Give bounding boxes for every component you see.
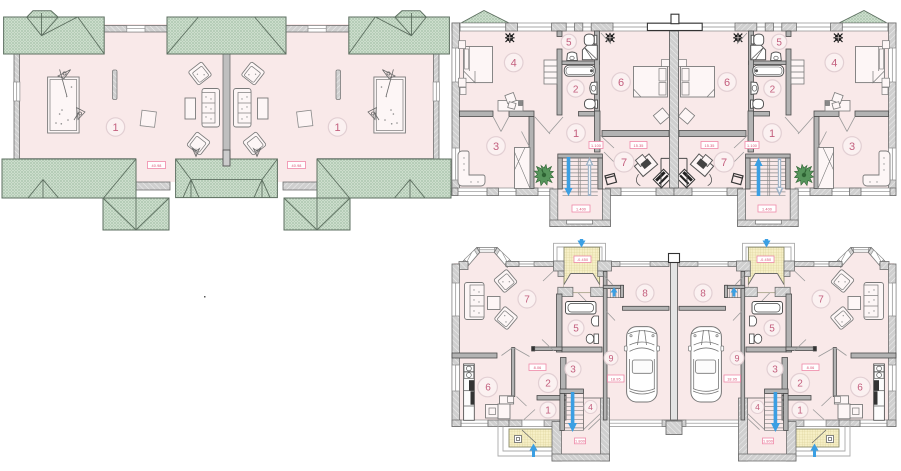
svg-text:18.95: 18.95: [611, 377, 621, 381]
svg-text:8: 8: [642, 289, 648, 300]
svg-text:5: 5: [573, 324, 579, 335]
svg-text:8: 8: [700, 289, 706, 300]
svg-text:5: 5: [769, 324, 775, 335]
svg-text:2: 2: [770, 84, 776, 95]
svg-text:9: 9: [734, 353, 739, 363]
svg-text:15.35: 15.35: [633, 144, 643, 148]
svg-text:3: 3: [493, 141, 499, 153]
svg-text:1.400: 1.400: [762, 207, 772, 211]
svg-text:-0.450: -0.450: [577, 258, 588, 262]
svg-text:6: 6: [724, 77, 730, 89]
svg-text:7: 7: [524, 295, 530, 306]
svg-text:1: 1: [769, 128, 775, 140]
svg-text:8.06: 8.06: [807, 366, 815, 370]
svg-text:8.06: 8.06: [534, 366, 542, 370]
svg-text:3: 3: [772, 365, 778, 376]
svg-text:7: 7: [818, 295, 824, 306]
svg-text:6: 6: [485, 383, 491, 394]
svg-text:6: 6: [618, 77, 624, 89]
svg-text:4: 4: [755, 402, 760, 412]
svg-text:5: 5: [776, 38, 782, 49]
svg-text:7: 7: [621, 157, 627, 169]
svg-text:2: 2: [573, 84, 579, 95]
svg-text:18.95: 18.95: [727, 377, 737, 381]
svg-text:2: 2: [797, 379, 803, 390]
svg-text:1.100: 1.100: [591, 144, 601, 148]
svg-text:4: 4: [831, 58, 837, 70]
svg-text:40.98: 40.98: [151, 164, 161, 168]
svg-text:1.800: 1.800: [763, 440, 773, 444]
svg-text:15.35: 15.35: [704, 144, 714, 148]
svg-text:1: 1: [797, 406, 803, 417]
svg-text:1: 1: [112, 122, 118, 134]
svg-text:1: 1: [573, 128, 579, 140]
svg-text:1.100: 1.100: [747, 144, 757, 148]
svg-text:40.98: 40.98: [291, 164, 301, 168]
svg-text:3: 3: [849, 141, 855, 153]
svg-text:4: 4: [588, 402, 593, 412]
svg-text:1.400: 1.400: [576, 207, 586, 211]
svg-text:6: 6: [857, 383, 863, 394]
svg-text:5: 5: [566, 38, 572, 49]
svg-text:1: 1: [334, 122, 340, 134]
svg-text:-0.450: -0.450: [760, 258, 771, 262]
svg-text:2: 2: [545, 379, 551, 390]
svg-text:1.800: 1.800: [575, 440, 585, 444]
svg-text:9: 9: [608, 353, 613, 363]
svg-text:3: 3: [570, 365, 576, 376]
svg-text:1: 1: [545, 406, 551, 417]
svg-text:4: 4: [511, 58, 517, 70]
svg-text:7: 7: [721, 157, 727, 169]
